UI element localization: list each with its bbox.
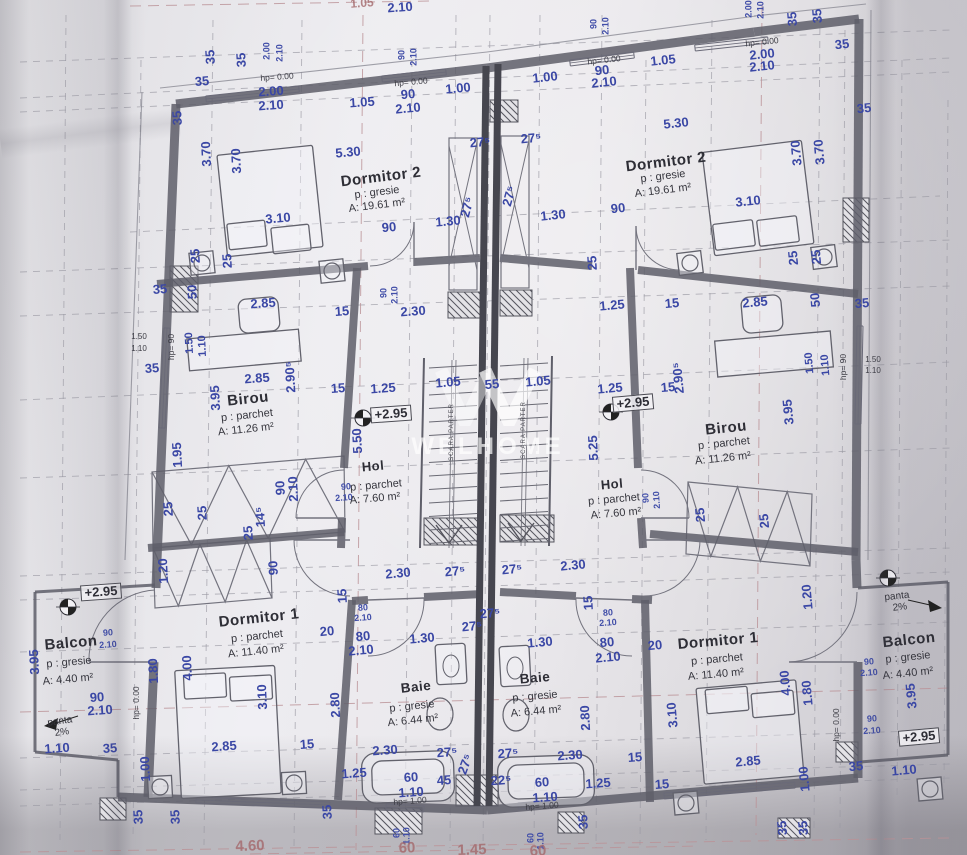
dim-label: 15 bbox=[334, 304, 349, 318]
dim-label: 2.10 bbox=[258, 98, 284, 113]
dim-label: 2.10 bbox=[591, 74, 618, 90]
dim-label: 15 bbox=[299, 737, 314, 751]
dim-label: 27⁵ bbox=[461, 619, 483, 634]
dim-label: 3.70 bbox=[811, 139, 826, 165]
dim-label: 2.10 bbox=[387, 0, 413, 14]
red-dim-label: 60 bbox=[398, 840, 415, 855]
height-label: hp= 0.00 bbox=[260, 72, 294, 83]
dim-label: 1.10 bbox=[865, 367, 881, 375]
dim-label: 1.50 bbox=[804, 352, 817, 374]
dim-label: 90 bbox=[380, 288, 389, 298]
dim-label: 15 bbox=[664, 296, 680, 310]
dim-label: 35 bbox=[854, 296, 870, 310]
room-name: Birou bbox=[226, 389, 269, 408]
dim-label: 90 bbox=[381, 220, 397, 234]
dim-label: 2.30 bbox=[560, 557, 586, 572]
dim-label: 3.70 bbox=[229, 148, 243, 174]
dim-label: 35 bbox=[848, 759, 864, 773]
dim-label: 3.10 bbox=[735, 193, 762, 209]
dim-label: 25 bbox=[241, 525, 255, 540]
dim-label: 25 bbox=[585, 255, 599, 270]
dim-label: 35 bbox=[320, 804, 334, 819]
dim-label: 2.80 bbox=[578, 705, 592, 731]
dim-label: 1.10 bbox=[197, 335, 209, 357]
dim-label: 1.10 bbox=[820, 354, 833, 376]
room-detail: A: 4.40 m² bbox=[42, 672, 94, 687]
dim-label: 15 bbox=[581, 595, 595, 610]
height-label: hp= 0.00 bbox=[132, 686, 141, 719]
dim-label: 22⁵ bbox=[490, 773, 511, 787]
dim-label: 3.95 bbox=[27, 649, 41, 675]
dim-label: 1.10 bbox=[891, 762, 917, 777]
height-label: hp= 1.00 bbox=[393, 796, 427, 807]
dim-label: 20 bbox=[319, 624, 335, 638]
dim-label: 2.10 bbox=[599, 618, 617, 628]
dim-label: 27⁵ bbox=[497, 746, 518, 760]
dim-label: 90 bbox=[266, 560, 280, 575]
dim-label: 2.10 bbox=[395, 100, 421, 115]
level-badge: +2.95 bbox=[370, 405, 412, 424]
dim-label: 2.80 bbox=[328, 692, 342, 718]
dim-label: 35 bbox=[131, 809, 145, 824]
room-detail: A: 11.26 m² bbox=[695, 451, 752, 468]
room-detail: p : gresie bbox=[512, 690, 558, 705]
dim-label: 1.00 bbox=[796, 766, 811, 792]
dim-label: 35 bbox=[234, 52, 248, 67]
room-detail: p : gresie bbox=[885, 650, 931, 666]
dim-label: 1.30 bbox=[409, 630, 435, 645]
dim-label: 80 bbox=[599, 635, 615, 649]
dim-label: 25 bbox=[220, 253, 234, 268]
dim-label: 35 bbox=[576, 814, 590, 829]
dim-label: 5.30 bbox=[335, 144, 361, 159]
dim-label: 2.85 bbox=[742, 294, 768, 309]
dim-label: 15 bbox=[335, 588, 349, 603]
stair-label: SCARA PARTER bbox=[449, 403, 455, 461]
room-detail: p : gresie bbox=[46, 656, 92, 671]
dim-label: 90 bbox=[590, 19, 599, 29]
dim-label: 2.10 bbox=[860, 668, 878, 678]
dim-label: 2.10 bbox=[602, 17, 611, 35]
dim-label: 35 bbox=[785, 11, 799, 26]
dim-label: 27⁵ bbox=[520, 131, 542, 146]
room-name: Balcon bbox=[882, 630, 936, 650]
dim-label: 90 bbox=[641, 493, 651, 503]
dim-label: 25 bbox=[693, 507, 707, 523]
dim-label: 90 bbox=[864, 657, 875, 667]
dim-label: 1.05 bbox=[650, 52, 677, 68]
room-detail: A: 4.40 m² bbox=[882, 666, 934, 682]
dim-label: 4.00 bbox=[777, 670, 792, 696]
dim-label: 2.00 bbox=[263, 42, 272, 60]
dim-label: 27⁵ bbox=[469, 135, 491, 150]
dim-label: 2.90⁵ bbox=[283, 361, 298, 393]
dim-label: 2.30 bbox=[557, 748, 583, 763]
room-detail: A: 6.44 m² bbox=[510, 704, 562, 719]
dim-label: 2.85 bbox=[735, 753, 761, 768]
room-name: Balcon bbox=[44, 633, 98, 653]
dim-label: 3.95 bbox=[780, 399, 795, 425]
dim-label: 27⁵ bbox=[479, 606, 501, 621]
dim-label: 20 bbox=[647, 638, 663, 652]
room-name: Hol bbox=[600, 477, 624, 492]
dim-label: 1.05 bbox=[525, 373, 551, 388]
red-dim-label: 4.60 bbox=[235, 838, 265, 854]
dim-label: 35 bbox=[168, 809, 182, 824]
dim-label: 1.25 bbox=[370, 381, 396, 396]
dim-label: 27⁵ bbox=[501, 562, 523, 577]
room-detail: 2% bbox=[892, 602, 907, 613]
dim-label: 25 bbox=[809, 249, 823, 265]
dim-label: 2.85 bbox=[244, 371, 270, 386]
dim-label: 15 bbox=[654, 777, 669, 791]
dim-label: 1.50 bbox=[131, 333, 147, 341]
dim-label: 45 bbox=[436, 773, 451, 787]
dim-label: 50 bbox=[808, 292, 822, 308]
dim-label: 27⁵ bbox=[455, 752, 474, 776]
dim-label: 1.25 bbox=[597, 380, 623, 395]
dim-label: 27⁵ bbox=[500, 184, 518, 207]
room-name: Hol bbox=[361, 459, 385, 474]
dim-label: 2.10 bbox=[286, 476, 300, 502]
dim-label: 55 bbox=[484, 377, 500, 391]
dim-label: 35 bbox=[152, 282, 167, 296]
dim-label: 35 bbox=[170, 110, 184, 125]
room-detail: A: 6.44 m² bbox=[387, 713, 439, 729]
red-dim-label: 1.05 bbox=[350, 0, 374, 10]
room-detail: A: 7.60 m² bbox=[590, 506, 642, 521]
room-name: Dormitor 1 bbox=[677, 630, 759, 652]
dim-label: 25 bbox=[161, 501, 175, 516]
dim-label: 2.10 bbox=[863, 726, 881, 736]
room-detail: 2% bbox=[54, 727, 70, 739]
dim-label: 35 bbox=[144, 361, 159, 375]
height-label: hp= 90 bbox=[167, 334, 176, 360]
dim-label: 1.50 bbox=[184, 332, 196, 354]
dim-label: 1.25 bbox=[341, 766, 367, 781]
room-detail: A: 7.60 m² bbox=[349, 491, 401, 506]
dim-label: 3.10 bbox=[664, 702, 679, 728]
room-name: Dormitor 1 bbox=[218, 606, 300, 629]
dim-label: 60 bbox=[403, 770, 418, 784]
dim-label: 2.30 bbox=[372, 743, 398, 758]
dim-label: 1.20 bbox=[799, 584, 814, 610]
room-name: Baie bbox=[519, 670, 551, 686]
dim-label: 2.10 bbox=[87, 703, 113, 718]
dim-label: 1.00 bbox=[138, 756, 152, 782]
dim-label: 2.10 bbox=[99, 640, 117, 650]
dim-label: 90 bbox=[398, 50, 407, 60]
dim-label: 15 bbox=[330, 381, 345, 395]
dim-label: 60 bbox=[393, 828, 402, 838]
dim-label: 2.10 bbox=[391, 286, 400, 304]
dim-label: 4.00 bbox=[180, 655, 194, 681]
dim-label: 2.85 bbox=[250, 296, 276, 311]
red-dim-label: 60 bbox=[529, 843, 546, 855]
dim-label: 1.25 bbox=[599, 297, 625, 312]
dim-label: 50 bbox=[185, 284, 199, 299]
dim-label: 60 bbox=[527, 833, 536, 843]
dim-label: 2.10 bbox=[749, 58, 776, 74]
dim-label: 35 bbox=[102, 741, 117, 755]
dim-label: 3.10 bbox=[255, 684, 269, 710]
dim-label: 2.10 bbox=[348, 642, 374, 657]
red-dim-label: 1.45 bbox=[457, 842, 487, 855]
dim-label: 1.20 bbox=[156, 558, 170, 584]
dim-label: 25 bbox=[188, 248, 202, 263]
dim-label: 2.10 bbox=[354, 613, 372, 623]
dim-label: 1.00 bbox=[445, 80, 471, 95]
dim-label: 3.95 bbox=[208, 385, 222, 411]
room-detail: p : parchet bbox=[691, 652, 744, 667]
dim-label: 90 bbox=[610, 201, 626, 215]
dim-label: 5.50 bbox=[350, 428, 364, 454]
dim-label: 2.10 bbox=[757, 1, 766, 19]
dim-label: 2.10 bbox=[652, 491, 662, 509]
dim-label: 1.30 bbox=[527, 634, 553, 649]
dim-label: 1.50 bbox=[865, 356, 881, 364]
dim-label: 1.30 bbox=[540, 207, 567, 223]
dim-label: 35 bbox=[856, 101, 872, 115]
dim-label: 3.95 bbox=[903, 683, 918, 709]
dim-label: 35 bbox=[203, 49, 217, 64]
dim-label: 3.70 bbox=[788, 140, 803, 166]
dim-label: 2.00 bbox=[745, 0, 754, 18]
height-label: hp= 0.00 bbox=[832, 708, 841, 741]
dim-label: 2.10 bbox=[410, 48, 419, 66]
dim-label: 1.10 bbox=[131, 345, 147, 353]
room-detail: A: 11.26 m² bbox=[218, 422, 275, 439]
dim-label: 25 bbox=[786, 250, 800, 266]
dim-label: 1.95 bbox=[170, 442, 184, 468]
dim-label: 1.80 bbox=[799, 680, 814, 706]
dim-label: 3.10 bbox=[265, 210, 291, 225]
height-label: hp= 1.00 bbox=[525, 801, 559, 812]
dim-label: 35 bbox=[775, 820, 789, 836]
dim-label: 35 bbox=[796, 820, 810, 836]
dim-label: 1.05 bbox=[435, 374, 461, 389]
dim-label: 90 bbox=[867, 714, 878, 724]
room-name: Baie bbox=[400, 679, 432, 696]
dim-label: 60 bbox=[534, 775, 549, 789]
dim-label: 1.80 bbox=[146, 658, 160, 684]
floor-plan-photo: WELHOME 1.052.1035352.002.1035hp= 0.002.… bbox=[0, 0, 967, 855]
dim-label: 3.70 bbox=[199, 141, 213, 167]
dim-label: 35 bbox=[834, 37, 850, 51]
dim-label: 2.10 bbox=[595, 649, 621, 664]
level-badge: +2.95 bbox=[612, 393, 654, 413]
dim-label: 25 bbox=[757, 513, 771, 529]
dim-label: 35 bbox=[810, 8, 824, 23]
label-layer: 1.052.1035352.002.1035hp= 0.002.002.101.… bbox=[0, 0, 967, 855]
dim-label: 1.05 bbox=[349, 95, 375, 110]
room-detail: A: 11.40 m² bbox=[228, 644, 285, 661]
dim-label: 15 bbox=[627, 750, 642, 764]
dim-label: 27⁵ bbox=[436, 745, 457, 759]
room-detail: A: 11.40 m² bbox=[688, 667, 745, 683]
stair-label: SCARA PARTER bbox=[521, 401, 527, 459]
dim-label: 25 bbox=[195, 505, 209, 520]
dim-label: 1.00 bbox=[532, 69, 559, 85]
dim-label: 2.90⁵ bbox=[670, 362, 686, 394]
dim-label: 1.25 bbox=[585, 776, 611, 791]
dim-label: 27⁵ bbox=[444, 564, 466, 579]
dim-label: 90 bbox=[103, 628, 114, 638]
dim-label: 2.10 bbox=[276, 44, 285, 62]
height-label: hp= 90 bbox=[839, 354, 848, 380]
level-badge: +2.95 bbox=[898, 727, 940, 747]
dim-label: 5.25 bbox=[586, 435, 600, 461]
dim-label: 2.30 bbox=[400, 304, 426, 319]
dim-label: 14⁵ bbox=[253, 506, 267, 527]
dim-label: 2.85 bbox=[211, 739, 237, 754]
dim-label: 5.30 bbox=[663, 115, 690, 131]
dim-label: 35 bbox=[194, 74, 209, 88]
level-badge: +2.95 bbox=[80, 583, 122, 602]
dim-label: 27⁵ bbox=[458, 195, 476, 218]
dim-label: 1.10 bbox=[44, 741, 70, 756]
dim-label: 2.30 bbox=[385, 565, 411, 580]
dim-label: 1.30 bbox=[435, 213, 461, 228]
